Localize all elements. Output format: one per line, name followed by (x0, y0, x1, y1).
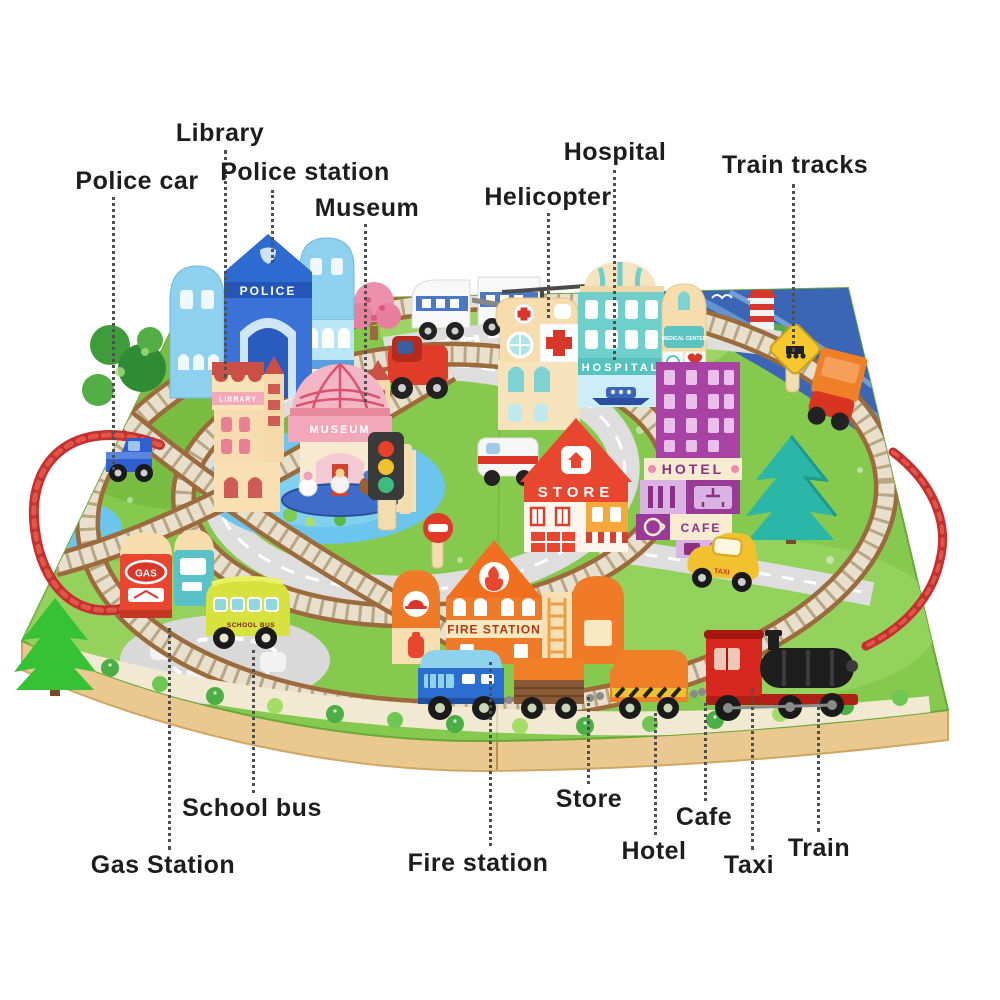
label-store: Store (556, 785, 622, 814)
label-hospital: Hospital (564, 138, 667, 167)
leader-line-train (817, 700, 820, 832)
leader-line-train-tracks (792, 184, 795, 352)
leader-line-hospital (613, 170, 616, 360)
leader-line-police-car (112, 197, 115, 470)
leader-line-gas-station (168, 628, 171, 850)
gas-sign: GAS (135, 569, 157, 580)
leader-line-police-station (271, 190, 274, 263)
library-sign: LIBRARY (219, 397, 257, 404)
leader-line-museum (364, 224, 367, 402)
library-toy: LIBRARY (212, 362, 264, 410)
hospital-sign: HOSPITAL (582, 362, 661, 374)
hotel-sign: HOTEL (662, 461, 724, 477)
leader-line-fire-station (489, 662, 492, 846)
label-train-tracks: Train tracks (722, 151, 868, 180)
label-library: Library (176, 119, 264, 148)
leader-line-hotel (654, 713, 657, 835)
leader-line-school-bus (252, 650, 255, 793)
label-school-bus: School bus (182, 794, 322, 823)
label-gas-station: Gas Station (91, 851, 235, 880)
label-hotel: Hotel (622, 837, 687, 866)
label-police-car: Police car (75, 167, 198, 196)
gas-station-toy: GAS (120, 530, 214, 618)
leader-line-helicopter (547, 213, 550, 318)
leader-line-cafe (704, 703, 707, 801)
product-image: POLICE LIBRARY MUSEUM (0, 0, 1000, 1000)
store-sign: STORE (538, 484, 614, 501)
label-taxi: Taxi (724, 851, 774, 880)
label-cafe: Cafe (676, 803, 732, 832)
lighthouse-graphic (748, 290, 776, 330)
label-fire-station: Fire station (408, 849, 549, 878)
museum-sign: MUSEUM (310, 424, 371, 436)
leader-line-taxi (751, 688, 754, 850)
label-police-station: Police station (220, 158, 390, 187)
medical-center-sign: MEDICAL CENTER (662, 336, 707, 342)
label-train: Train (788, 834, 850, 863)
fire-station-sign: FIRE STATION (447, 623, 541, 637)
label-helicopter: Helicopter (484, 183, 611, 212)
police-sign: POLICE (240, 284, 297, 298)
leader-line-store (587, 697, 590, 784)
label-museum: Museum (315, 194, 419, 223)
cafe-sign: CAFE (681, 521, 722, 535)
